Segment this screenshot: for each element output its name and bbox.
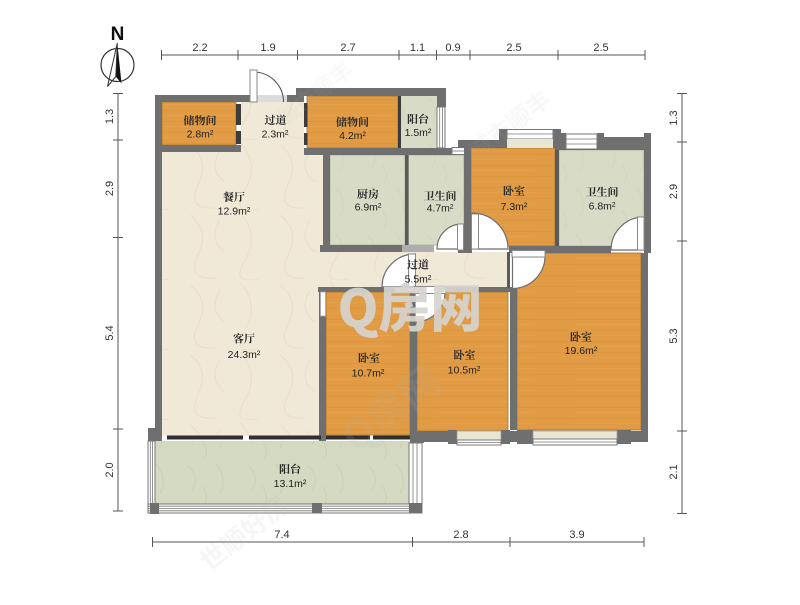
svg-text:1.3: 1.3 xyxy=(668,110,680,125)
svg-text:2.1: 2.1 xyxy=(668,464,680,479)
svg-text:1.3: 1.3 xyxy=(104,109,116,124)
svg-text:6.8m²: 6.8m² xyxy=(589,201,616,213)
svg-text:4.2m²: 4.2m² xyxy=(339,130,366,142)
svg-text:12.9m²: 12.9m² xyxy=(218,206,251,218)
svg-text:2.9: 2.9 xyxy=(104,181,116,196)
svg-text:2.8: 2.8 xyxy=(453,529,468,541)
svg-text:0.9: 0.9 xyxy=(445,42,460,54)
svg-text:2.5: 2.5 xyxy=(506,42,521,54)
svg-text:2.3m²: 2.3m² xyxy=(262,129,289,141)
svg-text:2.9: 2.9 xyxy=(668,184,680,199)
svg-text:13.1m²: 13.1m² xyxy=(274,478,307,490)
svg-text:3.9: 3.9 xyxy=(569,529,584,541)
svg-text:10.5m²: 10.5m² xyxy=(448,365,481,377)
svg-text:2.0: 2.0 xyxy=(104,462,116,477)
svg-text:7.4: 7.4 xyxy=(274,529,289,541)
svg-text:4.7m²: 4.7m² xyxy=(427,203,454,215)
svg-text:24.3m²: 24.3m² xyxy=(228,349,261,361)
svg-text:2.5: 2.5 xyxy=(593,42,608,54)
svg-text:6.9m²: 6.9m² xyxy=(355,202,382,214)
svg-text:1.1: 1.1 xyxy=(410,42,425,54)
svg-text:19.6m²: 19.6m² xyxy=(565,345,598,357)
svg-text:10.7m²: 10.7m² xyxy=(352,368,385,380)
svg-text:2.7: 2.7 xyxy=(340,42,355,54)
svg-text:7.3m²: 7.3m² xyxy=(501,201,528,213)
svg-text:5.4: 5.4 xyxy=(104,325,116,340)
svg-text:5.3: 5.3 xyxy=(668,328,680,343)
svg-text:2.8m²: 2.8m² xyxy=(187,129,214,141)
svg-text:1.5m²: 1.5m² xyxy=(405,127,432,139)
svg-text:N: N xyxy=(111,24,125,45)
svg-text:1.9: 1.9 xyxy=(260,42,275,54)
svg-text:2.2: 2.2 xyxy=(192,42,207,54)
